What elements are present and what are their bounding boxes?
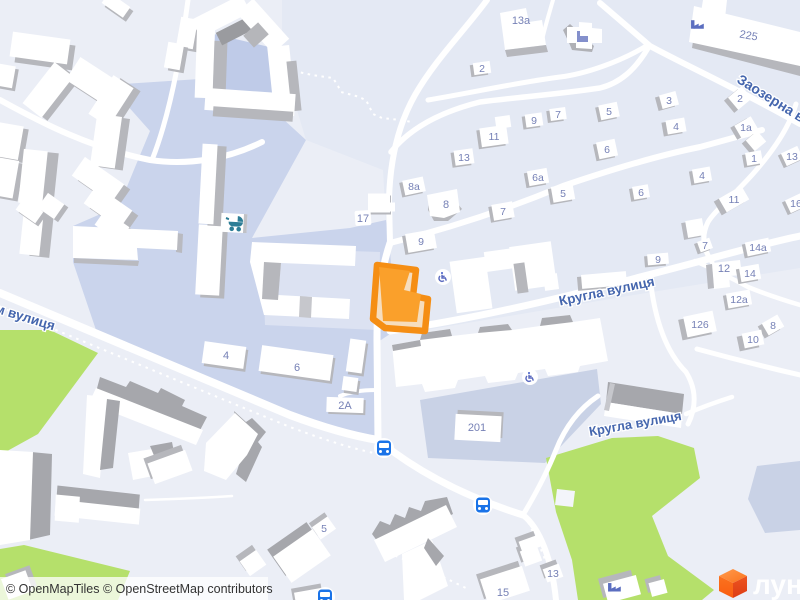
svg-text:8a: 8a <box>408 181 420 193</box>
svg-text:6a: 6a <box>532 172 544 184</box>
svg-text:6: 6 <box>638 187 644 199</box>
svg-text:3: 3 <box>666 95 672 107</box>
svg-text:8: 8 <box>443 199 449 211</box>
svg-text:17: 17 <box>357 213 369 225</box>
svg-text:4: 4 <box>673 121 679 133</box>
svg-text:13: 13 <box>786 151 798 163</box>
svg-text:6: 6 <box>604 144 610 156</box>
svg-text:11: 11 <box>729 194 740 206</box>
svg-text:13a: 13a <box>512 15 531 27</box>
svg-text:14: 14 <box>744 268 756 280</box>
svg-text:1: 1 <box>751 153 757 165</box>
svg-text:11: 11 <box>489 131 500 143</box>
svg-text:12a: 12a <box>730 294 748 306</box>
svg-text:14a: 14a <box>749 242 767 254</box>
svg-text:13: 13 <box>458 152 470 164</box>
svg-text:10: 10 <box>747 334 759 346</box>
svg-text:7: 7 <box>702 240 708 252</box>
svg-text:1a: 1a <box>740 122 752 134</box>
svg-text:6: 6 <box>294 362 300 374</box>
svg-text:© OpenMapTiles © OpenStreetMap: © OpenMapTiles © OpenStreetMap contribut… <box>6 582 273 596</box>
svg-text:7: 7 <box>555 109 561 121</box>
svg-text:201: 201 <box>468 422 486 434</box>
svg-text:5: 5 <box>321 523 327 535</box>
svg-text:4: 4 <box>223 350 229 362</box>
svg-text:2: 2 <box>479 63 485 75</box>
svg-text:5: 5 <box>606 106 612 118</box>
svg-text:16: 16 <box>790 198 800 210</box>
svg-text:2A: 2A <box>338 400 352 412</box>
svg-text:5: 5 <box>560 188 566 200</box>
svg-text:126: 126 <box>691 319 709 331</box>
svg-text:8: 8 <box>770 320 776 332</box>
svg-text:7: 7 <box>500 206 506 218</box>
svg-text:15: 15 <box>497 587 509 599</box>
svg-text:12: 12 <box>718 263 730 275</box>
svg-text:4: 4 <box>699 170 705 182</box>
svg-text:9: 9 <box>655 254 661 266</box>
svg-text:13: 13 <box>547 568 559 580</box>
svg-text:лун: лун <box>753 569 800 600</box>
svg-text:2: 2 <box>737 93 743 105</box>
svg-text:9: 9 <box>418 236 424 248</box>
svg-text:9: 9 <box>531 115 537 127</box>
